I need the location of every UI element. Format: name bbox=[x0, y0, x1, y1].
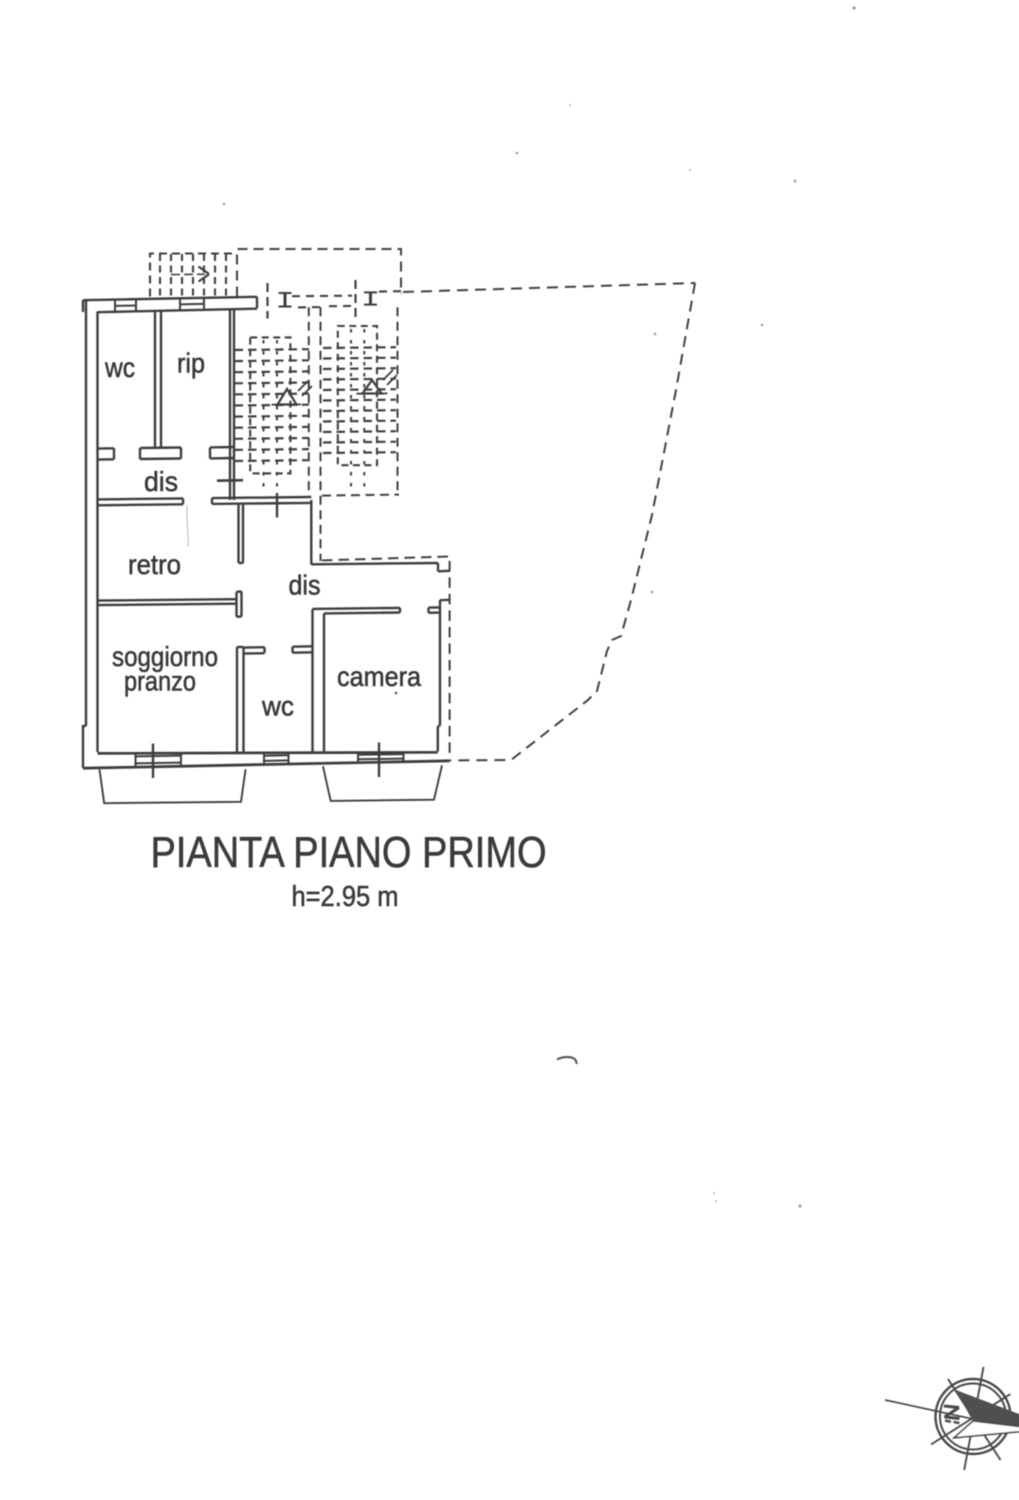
svg-text:camera: camera bbox=[337, 661, 421, 692]
svg-text:wc: wc bbox=[104, 352, 135, 383]
svg-text:wc: wc bbox=[261, 691, 294, 722]
svg-text:dis: dis bbox=[289, 570, 321, 601]
svg-text:PIANTA PIANO PRIMO: PIANTA PIANO PRIMO bbox=[151, 828, 547, 877]
svg-text:retro: retro bbox=[128, 549, 181, 580]
svg-text:dis: dis bbox=[144, 466, 178, 497]
svg-text:rip: rip bbox=[177, 348, 205, 379]
svg-text:h=2.95 m: h=2.95 m bbox=[292, 881, 399, 913]
svg-text:pranzo: pranzo bbox=[124, 666, 196, 697]
